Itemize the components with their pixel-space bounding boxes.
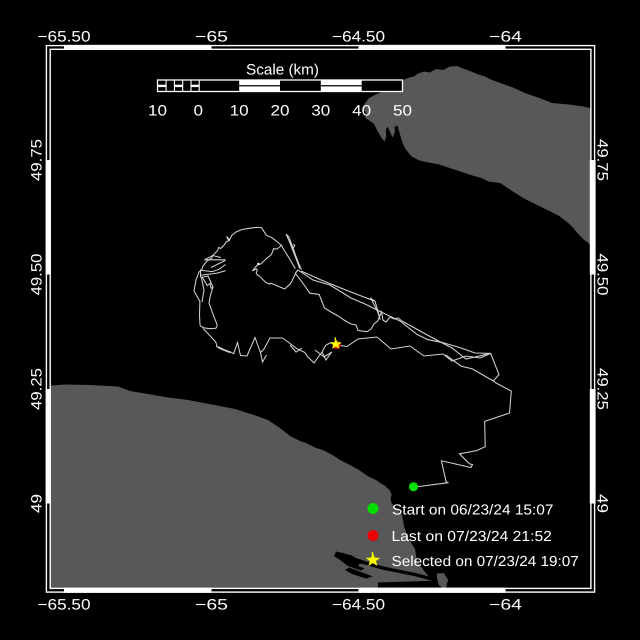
- svg-text:49.50: 49.50: [594, 254, 611, 296]
- svg-text:10: 10: [230, 103, 249, 120]
- svg-text:49: 49: [594, 494, 611, 513]
- svg-text:0: 0: [194, 103, 204, 120]
- svg-text:−64.50: −64.50: [332, 29, 385, 46]
- svg-text:−65: −65: [195, 29, 228, 46]
- svg-text:Start on 06/23/24 15:07: Start on 06/23/24 15:07: [392, 503, 554, 519]
- svg-text:49: 49: [29, 494, 46, 513]
- svg-text:Scale (km): Scale (km): [246, 62, 319, 79]
- svg-text:20: 20: [271, 103, 290, 120]
- svg-text:−64.50: −64.50: [332, 597, 385, 614]
- svg-text:40: 40: [352, 103, 371, 120]
- svg-text:49.50: 49.50: [29, 254, 46, 296]
- svg-text:30: 30: [311, 103, 330, 120]
- svg-text:−64: −64: [489, 29, 522, 46]
- svg-text:50: 50: [393, 103, 412, 120]
- svg-text:49.75: 49.75: [29, 139, 46, 181]
- svg-text:−65: −65: [195, 597, 228, 614]
- svg-text:Last on 07/23/24 21:52: Last on 07/23/24 21:52: [392, 529, 552, 545]
- svg-text:49.75: 49.75: [594, 139, 611, 181]
- svg-text:−65.50: −65.50: [38, 29, 91, 46]
- svg-text:−65.50: −65.50: [38, 597, 91, 614]
- svg-text:10: 10: [148, 103, 167, 120]
- svg-text:−64: −64: [489, 597, 522, 614]
- svg-text:49.25: 49.25: [29, 368, 46, 410]
- svg-text:Selected on 07/23/24 19:07: Selected on 07/23/24 19:07: [392, 554, 579, 570]
- svg-text:49.25: 49.25: [594, 368, 611, 410]
